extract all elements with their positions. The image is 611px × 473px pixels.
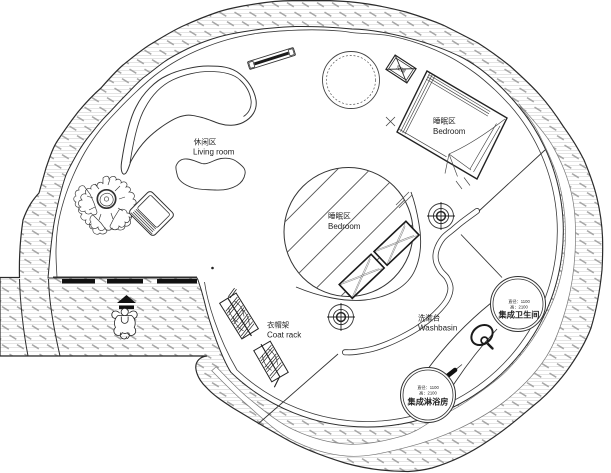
svg-text:洗漱台: 洗漱台 — [418, 314, 440, 323]
svg-text:Coat rack: Coat rack — [267, 331, 302, 340]
svg-text:直径：1100: 直径：1100 — [508, 298, 530, 304]
svg-text:睡眠区: 睡眠区 — [328, 212, 351, 221]
svg-text:Bedroom: Bedroom — [328, 222, 361, 231]
svg-text:Washbasin: Washbasin — [418, 324, 457, 333]
svg-text:集成卫生间: 集成卫生间 — [498, 310, 540, 320]
svg-text:衣帽架: 衣帽架 — [267, 321, 290, 330]
svg-text:休闲区: 休闲区 — [194, 137, 217, 147]
svg-text:Living room: Living room — [193, 148, 235, 157]
svg-text:Bedroom: Bedroom — [433, 127, 466, 136]
svg-text:高：2100: 高：2100 — [510, 304, 528, 311]
svg-text:集成淋浴房: 集成淋浴房 — [407, 397, 449, 407]
svg-text:睡眠区: 睡眠区 — [433, 117, 456, 126]
svg-text:高：2100: 高：2100 — [419, 390, 437, 397]
svg-text:直径：1100: 直径：1100 — [417, 384, 439, 390]
